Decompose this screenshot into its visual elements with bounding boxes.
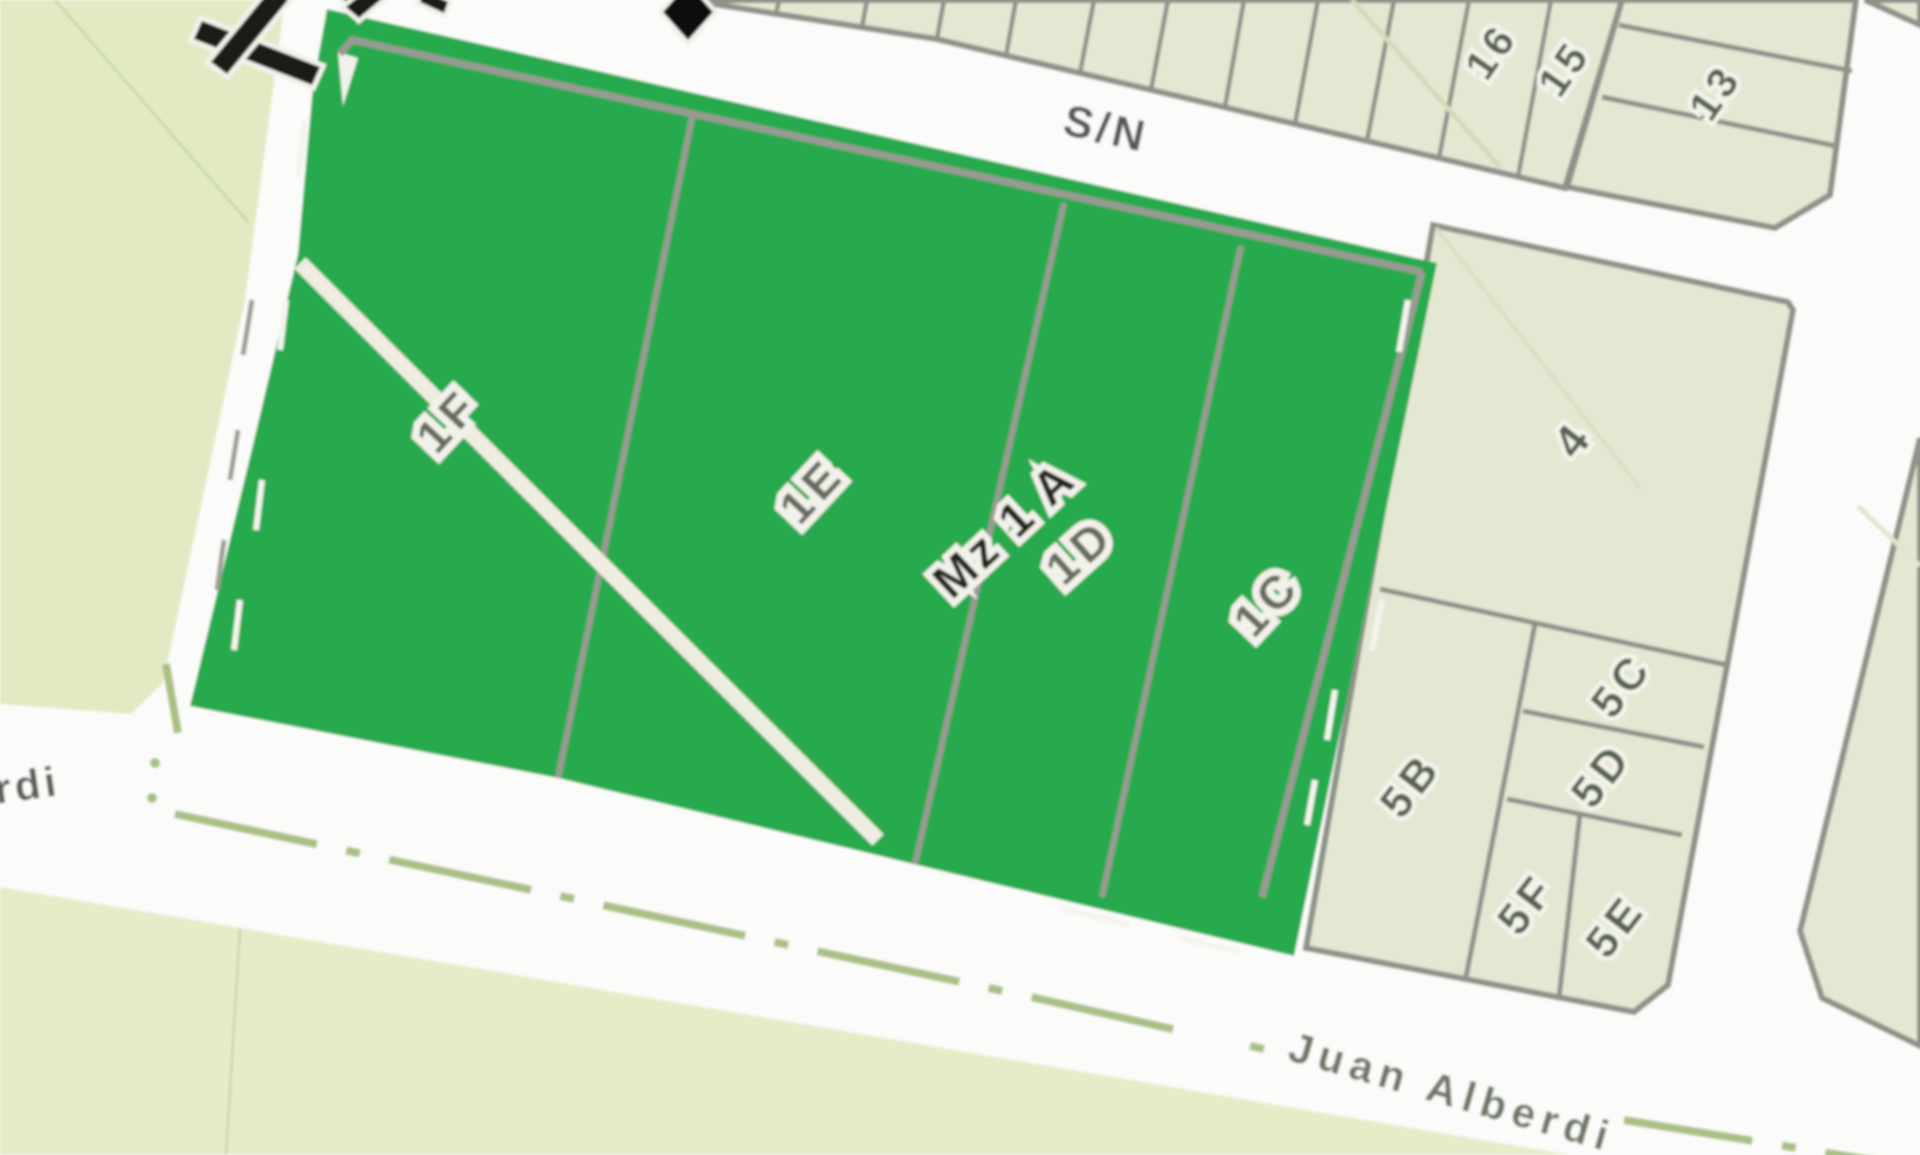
svg-text:rdi: rdi — [0, 757, 63, 813]
